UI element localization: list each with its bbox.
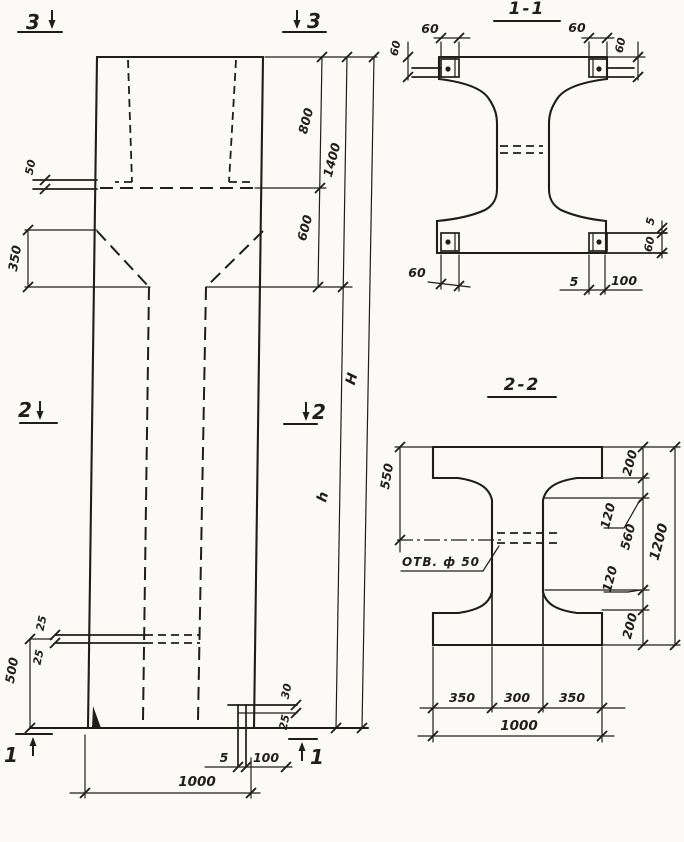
s11-dim-60-tl-h: 60 xyxy=(421,21,439,36)
elevation-view: 50 350 25 25 500 800 600 1400 h H xyxy=(2,9,379,798)
s11-dim-60-right: 60 xyxy=(642,235,658,253)
s22-dim-560: 560 xyxy=(617,522,638,551)
s22-dim-200-bottom: 200 xyxy=(619,611,640,640)
section-marker-3-right: 3 xyxy=(283,9,326,33)
s22-dim-120-bottom-callout: 120 xyxy=(599,564,641,593)
dim-H: H xyxy=(343,371,362,387)
section-marker-2-left: 2 xyxy=(18,398,57,423)
s11-dim-60-tr-h: 60 xyxy=(568,20,586,35)
svg-text:2: 2 xyxy=(312,400,326,424)
s22-right-outline xyxy=(543,447,602,645)
s22-dim-300: 300 xyxy=(504,690,530,705)
dim-h: h xyxy=(314,490,332,504)
embedded-plate-top-left xyxy=(441,59,459,77)
dim-25-top: 25 xyxy=(34,614,50,632)
dim-25-bottom: 25 xyxy=(31,648,47,666)
dim-50: 50 xyxy=(23,158,39,176)
dim-600: 600 xyxy=(294,213,315,242)
s22-dim-1200: 1200 xyxy=(647,522,672,562)
dim-100-foot: 100 xyxy=(253,750,279,765)
section-2-2-title: 2-2 xyxy=(504,375,541,395)
section-marker-1-right: 1 xyxy=(289,739,324,769)
section-2-2: 2-2 ОТВ. ф 50 550 200 xyxy=(377,375,680,742)
s22-dim-1000: 1000 xyxy=(500,718,538,734)
web-hidden-line xyxy=(143,287,149,720)
s11-right-outline xyxy=(549,57,607,253)
s11-left-outline xyxy=(437,57,497,253)
s22-dim-350-left: 350 xyxy=(449,690,475,705)
dim-1400: 1400 xyxy=(320,141,344,179)
s22-dim-120-bottom: 120 xyxy=(599,564,620,593)
s22-dim-120-top: 120 xyxy=(597,501,618,530)
taper-hidden-line xyxy=(97,231,149,287)
embedded-plate-bottom-left xyxy=(441,233,459,251)
dim-350: 350 xyxy=(5,244,24,273)
s11-dim-60-bl: 60 xyxy=(408,265,426,280)
section-marker-1-left: 1 xyxy=(4,734,52,767)
hole-callout: ОТВ. ф 50 xyxy=(401,546,499,571)
s22-dim-350-right: 350 xyxy=(559,690,585,705)
s11-dim-60-tr-v: 60 xyxy=(613,36,629,54)
s22-left-outline xyxy=(433,447,492,645)
section-marker-3-left: 3 xyxy=(18,10,62,34)
s22-dim-550: 550 xyxy=(377,462,396,491)
dim-800: 800 xyxy=(295,106,316,135)
hole-label: ОТВ. ф 50 xyxy=(402,555,480,569)
drawing-canvas: 50 350 25 25 500 800 600 1400 h H xyxy=(0,0,684,842)
hidden-line xyxy=(128,60,132,182)
s11-dim-100-bottom: 100 xyxy=(611,273,637,288)
column-left-edge xyxy=(88,57,97,728)
section-marker-2-right: 2 xyxy=(284,400,326,424)
embedded-plate-bottom-right xyxy=(589,233,607,251)
dim-500: 500 xyxy=(2,656,21,685)
foot-chamfer xyxy=(92,706,101,728)
s22-dim-200-top: 200 xyxy=(619,448,640,477)
section-1-1-title: 1-1 xyxy=(509,0,546,19)
dim-5-foot: 5 xyxy=(220,750,229,765)
svg-text:3: 3 xyxy=(26,10,40,34)
dim-1000: 1000 xyxy=(178,774,216,790)
s11-dim-5-right: 5 xyxy=(643,216,657,227)
svg-text:1: 1 xyxy=(310,745,324,769)
svg-text:1: 1 xyxy=(4,743,18,767)
s11-dim-5-bottom: 5 xyxy=(570,274,579,289)
hidden-line xyxy=(229,60,236,182)
dim-30-foot: 30 xyxy=(279,682,295,700)
taper-hidden-line xyxy=(206,231,263,287)
drawing-sheet: 50 350 25 25 500 800 600 1400 h H xyxy=(0,0,684,842)
svg-text:2: 2 xyxy=(18,398,32,422)
embedded-plate-top-right xyxy=(589,59,607,77)
s11-dim-60-tl-v: 60 xyxy=(388,39,404,57)
column-right-edge xyxy=(254,57,263,728)
web-hidden-line xyxy=(198,287,206,720)
svg-text:3: 3 xyxy=(307,9,321,33)
section-1-1: 1-1 xyxy=(388,0,667,295)
